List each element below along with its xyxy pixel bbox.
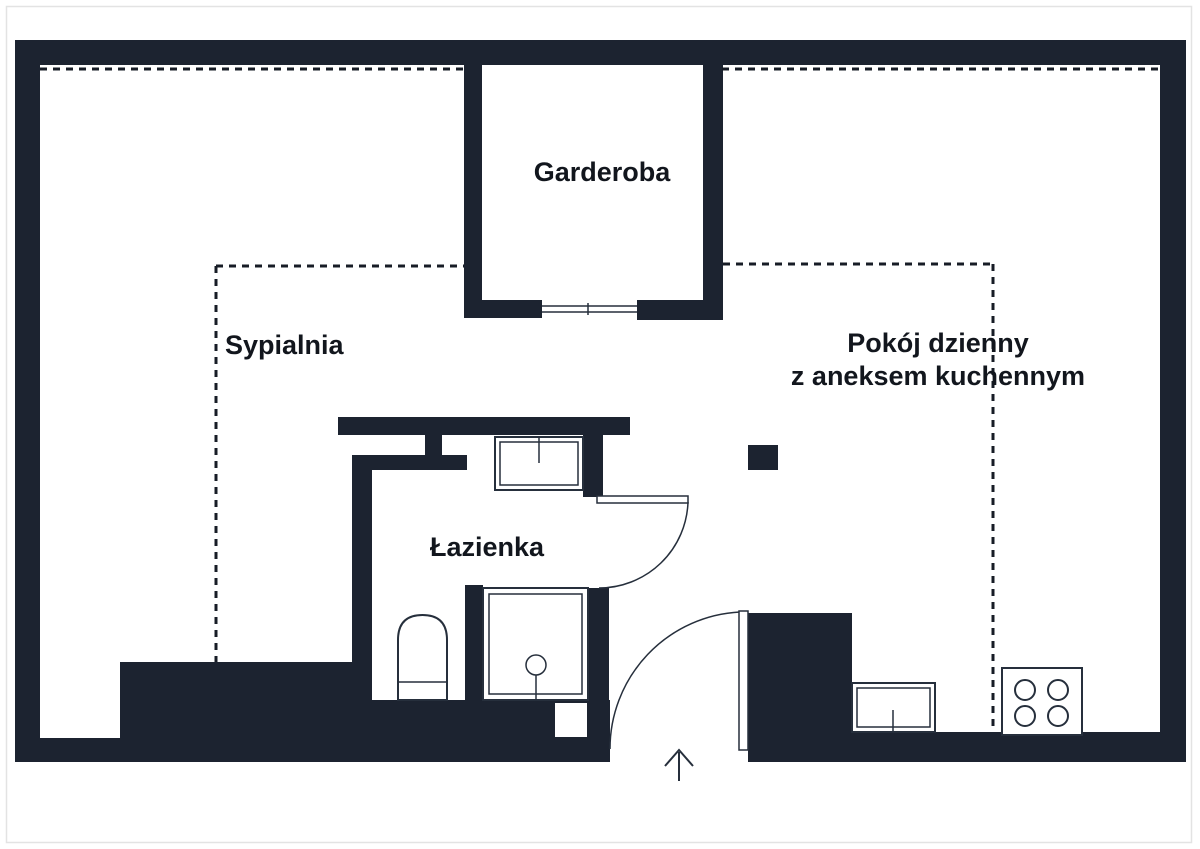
- living-room-label-line1: Pokój dzienny: [847, 328, 1029, 358]
- garderoba-wall-right: [703, 65, 723, 320]
- wall-right: [1160, 40, 1186, 762]
- entrance-door-leaf: [739, 611, 748, 750]
- toilet-bowl: [398, 615, 447, 700]
- kitchen-sink-symbol: [852, 683, 935, 732]
- entrance-door: [610, 611, 748, 750]
- wardrobe-sliding-door: [542, 303, 637, 315]
- bathroom-wall-connector: [425, 435, 442, 455]
- entrance-arrow-icon: [665, 750, 693, 781]
- living-room-label-line2: z aneksem kuchennym: [791, 361, 1085, 391]
- floor-plan-page: Garderoba Sypialnia Pokój dzienny z anek…: [0, 0, 1200, 849]
- wall-bottom-left: [15, 738, 610, 762]
- column-symbol: [748, 445, 778, 470]
- garderoba-wall-bottom-east: [637, 300, 723, 320]
- wall-top: [15, 40, 1186, 65]
- wall-bottom-right: [852, 732, 1186, 762]
- shower-symbol: [483, 588, 588, 700]
- bathroom-door-leaf: [597, 496, 688, 503]
- bedroom-south-block: [120, 662, 367, 738]
- garderoba-label: Garderoba: [534, 157, 672, 187]
- bathroom-door-arc: [599, 502, 688, 588]
- lazienka-label: Łazienka: [430, 532, 545, 562]
- stove-body: [1002, 668, 1082, 735]
- floor-plan-drawing: Garderoba Sypialnia Pokój dzienny z anek…: [0, 0, 1200, 849]
- entrance-door-arc: [610, 612, 740, 749]
- bathroom-south-niche: [555, 703, 587, 737]
- garderoba-wall-left: [464, 65, 482, 318]
- bathroom-sink-symbol: [495, 437, 583, 490]
- stove-symbol: [1002, 668, 1082, 735]
- garderoba-wall-bottom-west: [464, 300, 542, 318]
- sypialnia-label: Sypialnia: [225, 330, 345, 360]
- wall-left: [15, 40, 40, 762]
- bathroom-wall-east-upper: [583, 435, 603, 497]
- entry-utility-block: [748, 613, 852, 762]
- toilet-symbol: [398, 615, 447, 700]
- bathroom-wall-north-bar: [338, 417, 630, 435]
- shower-wall-west: [465, 585, 483, 702]
- bathroom-door: [597, 496, 688, 588]
